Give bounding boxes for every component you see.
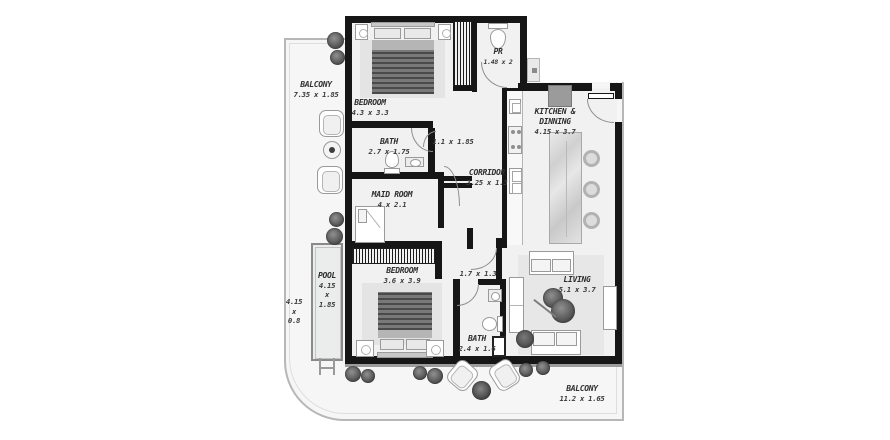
plant-icon: [427, 368, 443, 384]
floor-plan: BALCONY 7.35 x 1.85 BEDROOM 4.3 x 3.3 BA…: [0, 0, 890, 440]
room-name: BALCONY: [284, 80, 348, 90]
room-name: KITCHEN &: [515, 107, 595, 117]
wall: [345, 121, 433, 128]
wardrobe-icon: [453, 21, 472, 86]
room-label-hall1: 1.1 x 1.85: [425, 137, 481, 147]
dining-chair-icon: [583, 212, 600, 229]
nightstand-icon: [426, 340, 444, 357]
room-label-kitchen: KITCHEN & DINNING 4.15 x 3.7: [515, 107, 595, 137]
nightstand-icon: [356, 340, 374, 357]
room-dim: 3.25 x 1.3: [450, 178, 524, 188]
sofa-icon: [531, 330, 581, 355]
room-name: MAID ROOM: [352, 190, 432, 200]
wall: [467, 228, 473, 249]
plant-icon: [519, 363, 533, 377]
wall: [615, 83, 622, 99]
room-dim: 11.2 x 1.65: [530, 394, 634, 404]
fridge-icon: [548, 85, 572, 107]
plant-icon: [345, 366, 361, 382]
dining-chair-icon: [583, 181, 600, 198]
plant-icon: [551, 299, 575, 323]
room-label-pr: PR 1.48 x 2: [477, 47, 519, 67]
room-label-hall2: 1.7 x 1.3: [448, 269, 508, 279]
plant-icon: [326, 228, 343, 245]
room-name: PR: [477, 47, 519, 57]
room-dim: x: [311, 290, 343, 300]
plant-icon: [413, 366, 427, 380]
kitchen-island: [549, 132, 582, 244]
room-dim: 4.15: [280, 297, 308, 307]
room-label-balcony-bottom: BALCONY 11.2 x 1.65: [530, 384, 634, 404]
room-dim: 2.4 x 1.6: [448, 344, 506, 354]
sink-icon: [405, 157, 424, 167]
room-label-corridor: CORRIDOR 3.25 x 1.3: [450, 168, 524, 188]
wall: [520, 16, 527, 91]
room-label-pool: POOL 4.15 x 1.85: [311, 271, 343, 309]
room-dim: 1.85: [311, 300, 343, 310]
room-dim: 0.8: [280, 316, 308, 326]
nightstand-icon: [355, 24, 368, 40]
room-label-bath1: BATH 2.7 x 1.75: [354, 137, 424, 157]
plant-icon: [327, 32, 344, 49]
entrance-door-leaf: [588, 93, 614, 99]
plant-icon: [536, 361, 550, 375]
room-label-pool-side: 4.15 x 0.8: [280, 297, 308, 326]
room-dim: 5.1 x 3.7: [540, 285, 614, 295]
side-table-icon: [323, 141, 341, 159]
plant-icon: [361, 369, 375, 383]
dining-chair-icon: [583, 150, 600, 167]
room-dim: 1.7 x 1.3: [448, 269, 508, 279]
console-icon: [509, 277, 524, 333]
room-name: DINNING: [515, 117, 595, 127]
pool-ladder-icon: [317, 358, 337, 375]
room-dim: 2.7 x 1.75: [354, 147, 424, 157]
double-bed-icon: [377, 292, 433, 358]
room-name: POOL: [311, 271, 343, 281]
room-label-bedroom2: BEDROOM 3.6 x 3.9: [362, 266, 442, 286]
plant-icon: [330, 50, 345, 65]
room-label-bath2: BATH 2.4 x 1.6: [448, 334, 506, 354]
sofa-icon: [529, 251, 574, 275]
room-label-balcony-left: BALCONY 7.35 x 1.85: [284, 80, 348, 100]
sink-icon: [488, 289, 502, 302]
room-dim: 1.48 x 2: [477, 57, 519, 67]
room-label-living: LIVING 5.1 x 3.7: [540, 275, 614, 295]
wall-niche: [527, 58, 540, 82]
room-dim: 4 x 2.1: [352, 200, 432, 210]
room-name: BALCONY: [530, 384, 634, 394]
wall: [345, 16, 352, 364]
room-name: BATH: [448, 334, 506, 344]
nightstand-icon: [438, 24, 451, 40]
round-table-icon: [472, 381, 491, 400]
wardrobe-icon: [352, 248, 435, 264]
room-name: CORRIDOR: [450, 168, 524, 178]
room-name: BEDROOM: [362, 266, 442, 276]
room-label-maid: MAID ROOM 4 x 2.1: [352, 190, 432, 210]
room-dim: 1.1 x 1.85: [425, 137, 481, 147]
room-dim: 3.6 x 3.9: [362, 276, 442, 286]
toilet-icon: [482, 316, 503, 332]
pouf-icon: [516, 330, 534, 348]
plant-icon: [329, 212, 344, 227]
room-name: BEDROOM: [330, 98, 410, 108]
room-label-bedroom1: BEDROOM 4.3 x 3.3: [330, 98, 410, 118]
double-bed-icon: [371, 22, 435, 94]
room-dim: 4.3 x 3.3: [330, 108, 410, 118]
room-name: LIVING: [540, 275, 614, 285]
armchair-icon: [317, 166, 343, 194]
room-dim: 4.15: [311, 281, 343, 291]
room-dim: 4.15 x 3.7: [515, 127, 595, 137]
room-dim: x: [280, 307, 308, 317]
room-name: BATH: [354, 137, 424, 147]
single-bed-icon: [355, 206, 385, 243]
